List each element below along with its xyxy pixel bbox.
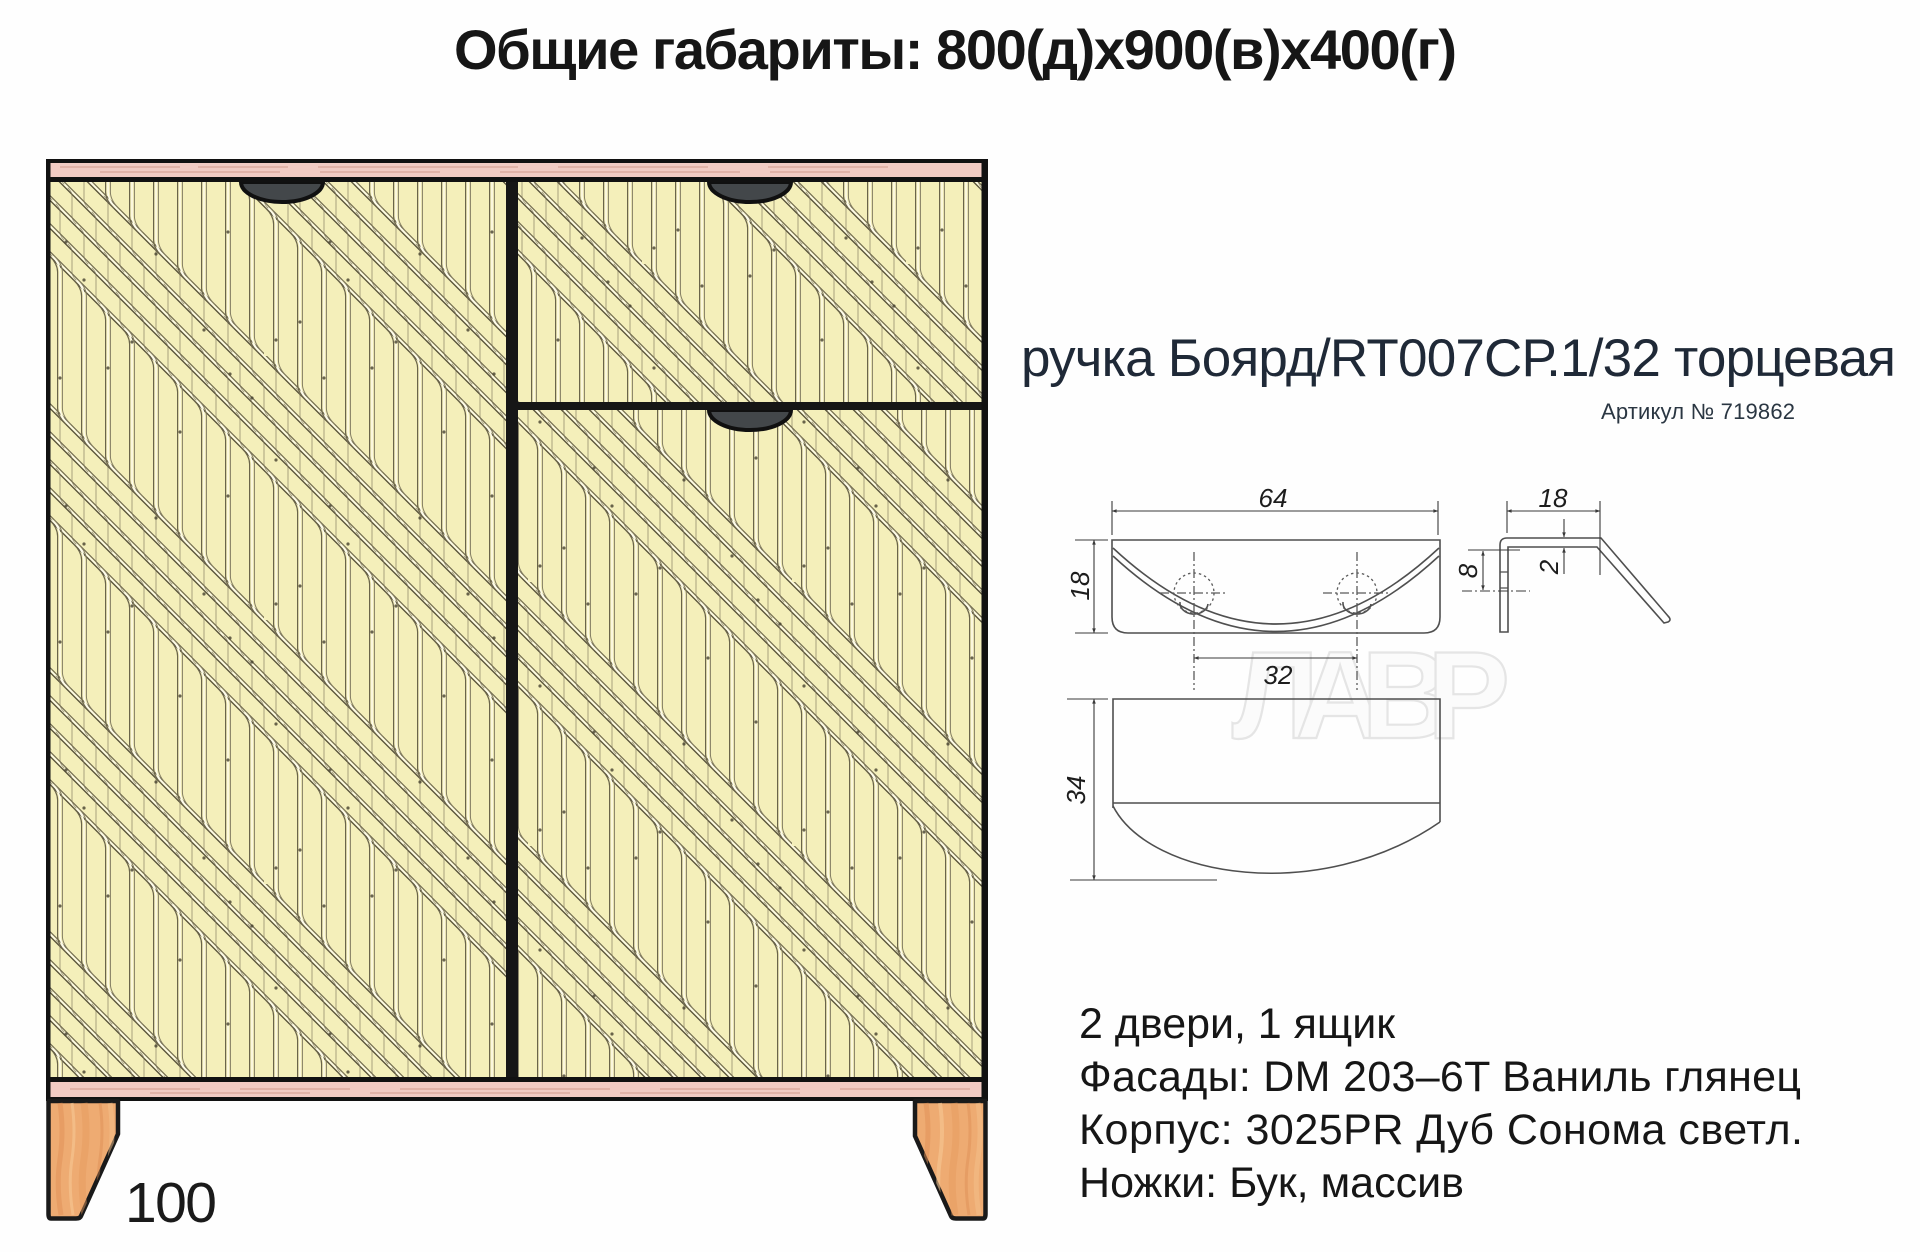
svg-text:ЛАВР: ЛАВР	[1232, 627, 1510, 765]
svg-text:8: 8	[1453, 563, 1483, 578]
svg-text:2: 2	[1534, 559, 1564, 575]
svg-text:ручка Боярд/RT007СР.1/32 торце: ручка Боярд/RT007СР.1/32 торцевая	[1021, 329, 1896, 388]
svg-text:Ножки: Бук, массив: Ножки: Бук, массив	[1079, 1159, 1464, 1207]
svg-text:18: 18	[1539, 483, 1568, 513]
svg-text:2 двери, 1 ящик: 2 двери, 1 ящик	[1079, 1000, 1396, 1048]
svg-text:Общие габариты: 800(д)x900(в)x: Общие габариты: 800(д)x900(в)x400(г)	[454, 18, 1457, 81]
svg-text:Корпус: 3025PR Дуб Сонома свет: Корпус: 3025PR Дуб Сонома светл.	[1079, 1106, 1803, 1154]
svg-text:64: 64	[1259, 483, 1288, 513]
svg-text:Фасады: DM 203–6T Ваниль гляне: Фасады: DM 203–6T Ваниль глянец	[1079, 1053, 1801, 1101]
svg-text:Артикул № 719862: Артикул № 719862	[1601, 399, 1795, 424]
svg-text:100: 100	[125, 1171, 217, 1235]
svg-text:34: 34	[1061, 776, 1091, 805]
svg-text:18: 18	[1065, 571, 1095, 600]
svg-text:32: 32	[1264, 660, 1293, 690]
